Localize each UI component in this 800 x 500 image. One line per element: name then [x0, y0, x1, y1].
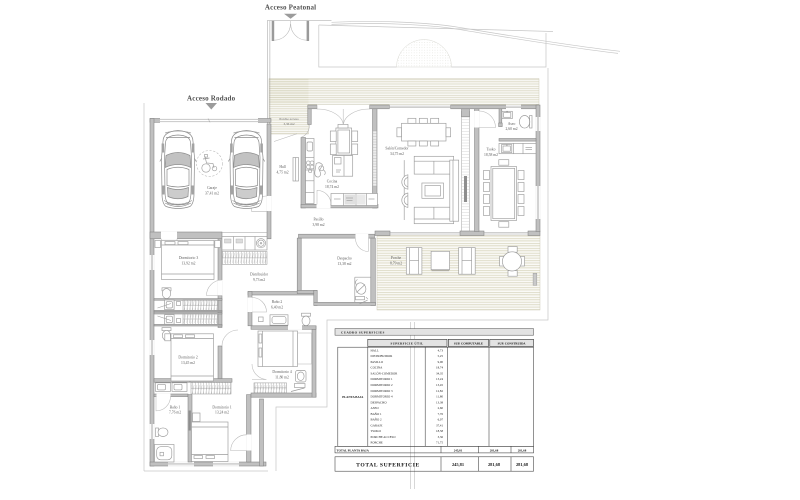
- svg-text:Dormitorio 3: Dormitorio 3: [179, 256, 199, 260]
- svg-text:245,81: 245,81: [454, 448, 463, 452]
- svg-text:PORCHE: PORCHE: [371, 441, 383, 445]
- svg-text:Garaje: Garaje: [207, 186, 217, 190]
- svg-text:DORMITORIO 4: DORMITORIO 4: [371, 395, 393, 399]
- svg-text:PLANTA BAJA: PLANTA BAJA: [342, 395, 364, 399]
- svg-text:COCINA: COCINA: [371, 366, 384, 370]
- svg-text:DISTRIBUIDOR: DISTRIBUIDOR: [371, 354, 394, 358]
- svg-text:Cocina: Cocina: [327, 180, 338, 184]
- svg-text:Acceso Rodado: Acceso Rodado: [187, 94, 236, 102]
- svg-text:281,68: 281,68: [516, 462, 529, 467]
- svg-text:SUP. CONSTRUIDA: SUP. CONSTRUIDA: [498, 341, 527, 345]
- svg-text:Porche: Porche: [391, 256, 402, 260]
- svg-text:TOTAL SUPERFICIE: TOTAL SUPERFICIE: [356, 463, 420, 469]
- svg-text:PASILLO: PASILLO: [371, 360, 384, 364]
- svg-text:SUPERFICIE ÚTIL: SUPERFICIE ÚTIL: [390, 340, 423, 345]
- svg-text:DESPACHO: DESPACHO: [371, 400, 388, 404]
- svg-text:Hall: Hall: [279, 165, 285, 169]
- svg-text:245,81: 245,81: [452, 462, 464, 467]
- svg-text:Aseo: Aseo: [508, 122, 516, 126]
- svg-text:CUADRO SUPERFICIES: CUADRO SUPERFICIES: [341, 331, 385, 335]
- svg-text:HALL: HALL: [371, 348, 379, 352]
- svg-text:281,68: 281,68: [518, 448, 527, 452]
- svg-text:Baño 1: Baño 1: [170, 406, 181, 410]
- svg-text:Acceso Peatonal: Acceso Peatonal: [265, 4, 316, 12]
- svg-text:281,68: 281,68: [490, 448, 499, 452]
- svg-text:SALÓN-COMEDOR: SALÓN-COMEDOR: [371, 371, 399, 376]
- svg-text:GARAJE: GARAJE: [371, 423, 383, 427]
- svg-text:Porche acceso: Porche acceso: [279, 117, 299, 121]
- svg-text:DORMITORIO 2: DORMITORIO 2: [371, 383, 393, 387]
- svg-text:Baño 2: Baño 2: [272, 300, 283, 304]
- svg-text:TSOKO: TSOKO: [371, 429, 382, 433]
- svg-text:281,68: 281,68: [488, 462, 501, 467]
- svg-text:Distribuidor: Distribuidor: [250, 273, 269, 277]
- svg-text:ASEO: ASEO: [371, 406, 380, 410]
- svg-text:Dormitorio 2: Dormitorio 2: [178, 356, 198, 360]
- svg-text:SUP. COMPUTABLE: SUP. COMPUTABLE: [454, 341, 483, 345]
- svg-text:PORCHE ACCESO: PORCHE ACCESO: [371, 435, 397, 439]
- svg-text:Tsoko: Tsoko: [487, 148, 496, 152]
- svg-text:BAÑO 2: BAÑO 2: [371, 417, 383, 422]
- svg-text:BAÑO 1: BAÑO 1: [371, 411, 383, 416]
- svg-text:Dormitorio 1: Dormitorio 1: [212, 406, 232, 410]
- svg-text:Pasillo: Pasillo: [313, 218, 323, 222]
- svg-text:DORMITORIO 1: DORMITORIO 1: [371, 377, 393, 381]
- svg-text:Dormitorio 4: Dormitorio 4: [272, 370, 292, 374]
- svg-text:Despacho: Despacho: [337, 257, 352, 261]
- svg-text:DORMITORIO 3: DORMITORIO 3: [371, 389, 393, 393]
- svg-text:Salón/Comedor: Salón/Comedor: [385, 147, 409, 151]
- svg-text:TOTAL PLANTA BAJA: TOTAL PLANTA BAJA: [337, 448, 370, 452]
